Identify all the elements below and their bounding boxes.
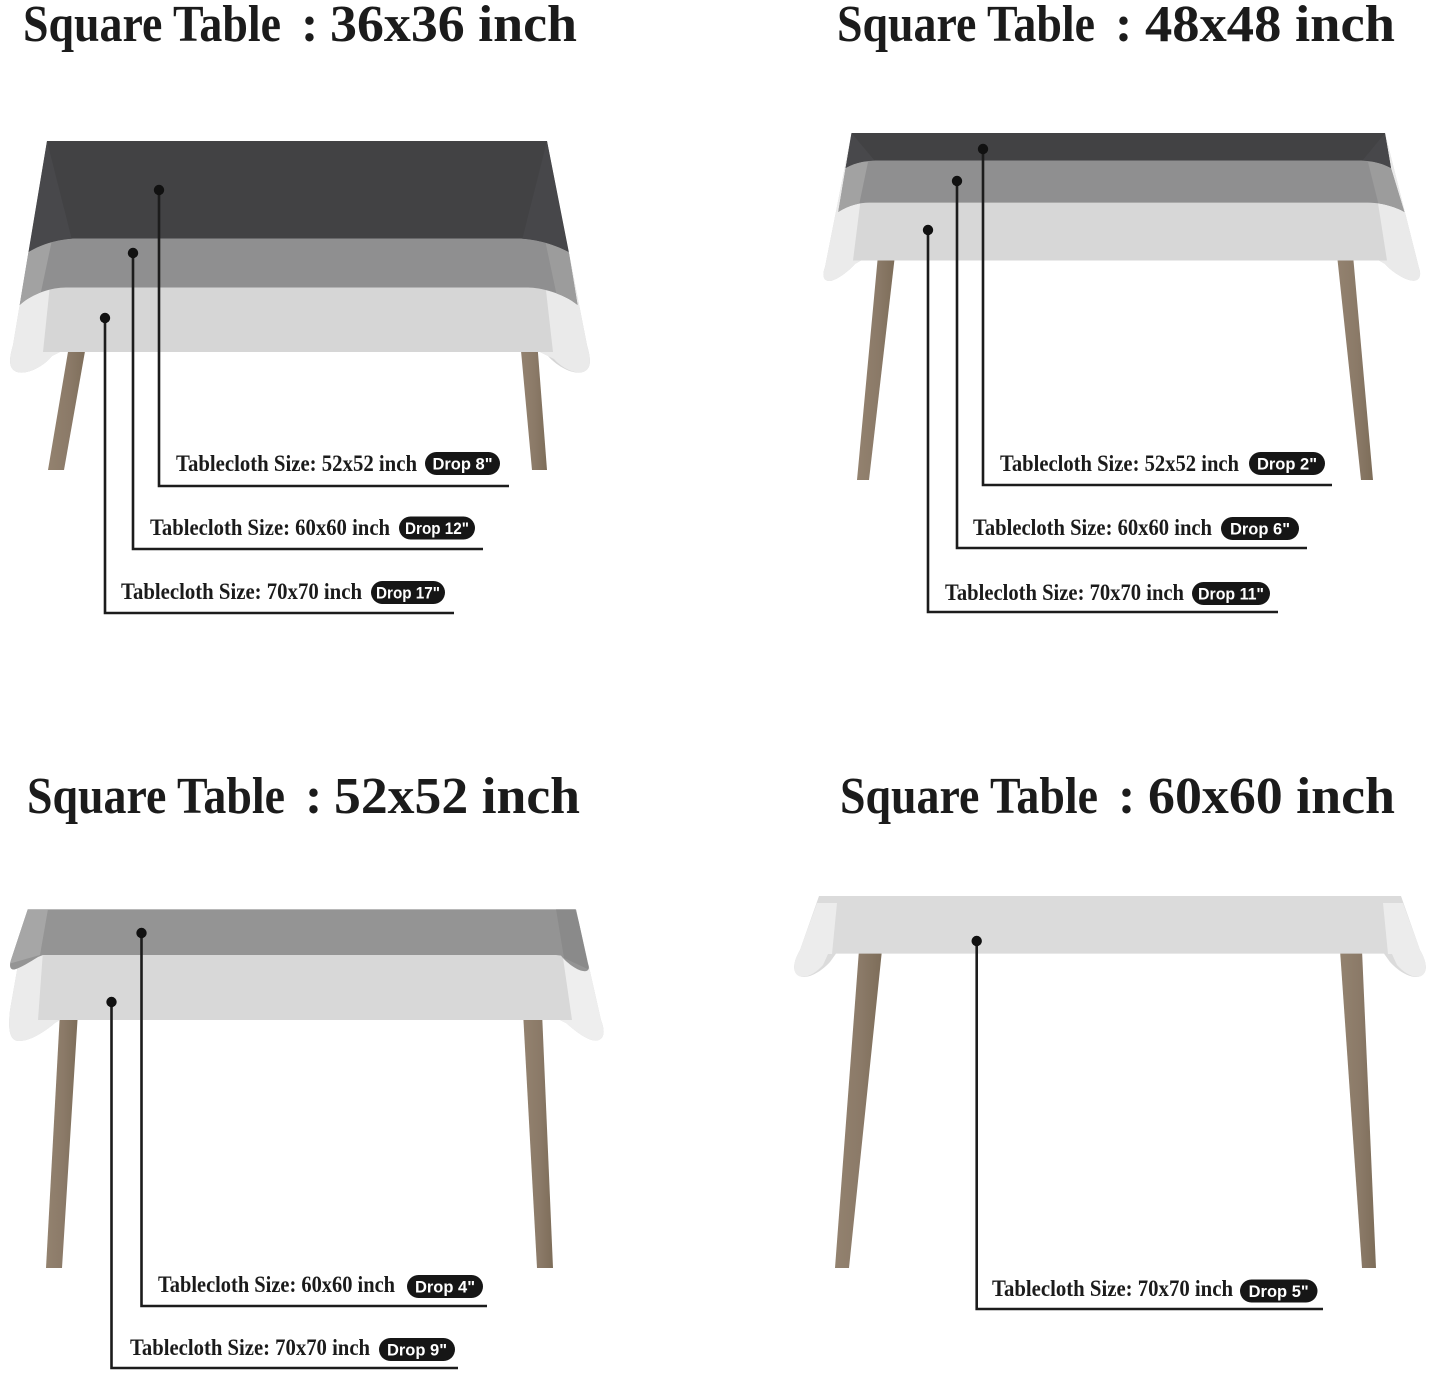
svg-text:52x52 inch: 52x52 inch xyxy=(334,768,580,825)
svg-text:Tablecloth Size: 52x52 inch: Tablecloth Size: 52x52 inch xyxy=(176,451,417,476)
svg-text::: : xyxy=(305,768,322,825)
svg-text:Drop 12": Drop 12" xyxy=(405,520,469,538)
svg-text:Square Table: Square Table xyxy=(840,768,1098,825)
svg-text:Tablecloth Size: 60x60 inch: Tablecloth Size: 60x60 inch xyxy=(150,515,390,540)
svg-text:Drop 11": Drop 11" xyxy=(1198,586,1264,604)
svg-text:60x60 inch: 60x60 inch xyxy=(1148,768,1395,825)
svg-text:Tablecloth Size: 70x70 inch: Tablecloth Size: 70x70 inch xyxy=(130,1335,370,1360)
svg-text:48x48 inch: 48x48 inch xyxy=(1145,0,1395,53)
svg-text:Drop 4": Drop 4" xyxy=(415,1279,475,1297)
svg-text:Tablecloth Size: 70x70 inch: Tablecloth Size: 70x70 inch xyxy=(121,579,362,604)
svg-text:Drop 2": Drop 2" xyxy=(1257,456,1317,474)
svg-text:Square Table: Square Table xyxy=(837,0,1095,53)
svg-text:Tablecloth Size: 70x70 inch: Tablecloth Size: 70x70 inch xyxy=(992,1276,1233,1301)
svg-text:Square Table: Square Table xyxy=(27,768,285,825)
svg-text::: : xyxy=(1115,0,1132,53)
svg-text:Square Table: Square Table xyxy=(23,0,281,53)
svg-text::: : xyxy=(301,0,318,53)
svg-text:36x36 inch: 36x36 inch xyxy=(330,0,577,53)
svg-text:Drop 5": Drop 5" xyxy=(1249,1283,1309,1301)
svg-text:Drop 17": Drop 17" xyxy=(376,585,440,603)
svg-text::: : xyxy=(1118,768,1135,825)
svg-text:Tablecloth Size: 70x70 inch: Tablecloth Size: 70x70 inch xyxy=(945,580,1184,605)
svg-text:Drop 8": Drop 8" xyxy=(432,456,492,474)
svg-text:Tablecloth Size: 60x60 inch: Tablecloth Size: 60x60 inch xyxy=(158,1272,395,1297)
svg-text:Drop 6": Drop 6" xyxy=(1230,521,1290,539)
svg-text:Tablecloth Size: 60x60 inch: Tablecloth Size: 60x60 inch xyxy=(973,515,1212,540)
svg-text:Drop 9": Drop 9" xyxy=(387,1342,447,1360)
svg-text:Tablecloth Size: 52x52 inch: Tablecloth Size: 52x52 inch xyxy=(1000,451,1239,476)
